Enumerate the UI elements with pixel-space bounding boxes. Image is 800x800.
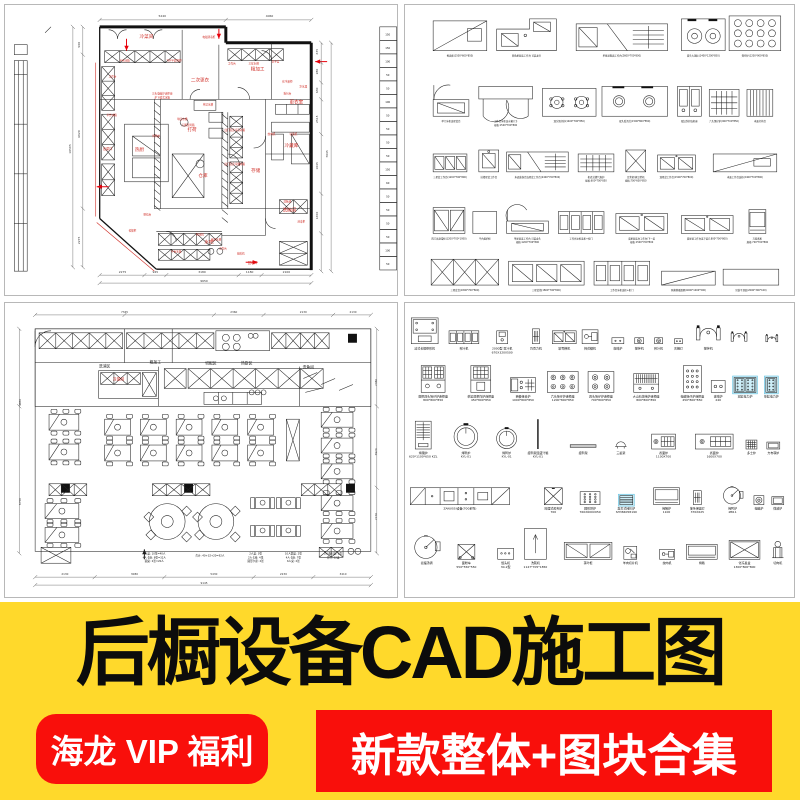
svg-text:规格:1500*700*800: 规格:1500*700*800	[630, 240, 654, 244]
svg-text:2230: 2230	[374, 513, 378, 520]
svg-text:6920: 6920	[77, 130, 81, 138]
svg-text:50: 50	[386, 194, 390, 198]
svg-text:净水器: 净水器	[299, 84, 307, 88]
svg-text:620*1100*650 KZL: 620*1100*650 KZL	[409, 455, 438, 459]
svg-text:合计: 40+32+20=92人: 合计: 40+32+20=92人	[195, 553, 224, 557]
svg-text:更衣室: 更衣室	[290, 98, 304, 105]
svg-text:100: 100	[385, 59, 390, 63]
svg-text:双头低汤灶(1500*800*850): 双头低汤灶(1500*800*850)	[619, 119, 650, 123]
svg-text:灭蝇灯: 灭蝇灯	[674, 346, 683, 351]
svg-text:化学品柜: 化学品柜	[282, 79, 293, 83]
svg-text:双星水槽: 双星水槽	[211, 237, 222, 241]
svg-text:3080: 3080	[131, 572, 138, 576]
svg-text:2人临时桌: 2张: 2人临时桌: 2张	[324, 551, 342, 555]
svg-text:多士炉: 多士炉	[747, 450, 756, 455]
svg-text:平台冰箱: 平台冰箱	[119, 59, 130, 63]
promo-banner: 后橱设备CAD施工图 海龙 VIP 福利 新款整体+图块合集	[0, 602, 800, 800]
svg-text:50: 50	[386, 127, 390, 131]
svg-text:挂鸭架: 挂鸭架	[579, 450, 588, 455]
svg-text:法式长棍整形机: 法式长棍整形机	[414, 346, 435, 351]
svg-text:150: 150	[385, 46, 390, 50]
svg-text:三星架: 三星架	[616, 450, 625, 455]
svg-text:切配区: 切配区	[205, 361, 217, 366]
svg-text:675: 675	[315, 49, 319, 55]
svg-text:450*800*850: 450*800*850	[682, 398, 702, 402]
panel-equipment-blocks-bottom: 法式长棍整形机榨汁机2000型 豆汁机670X320X500巧克力机软雪糕机棉花…	[404, 302, 795, 598]
svg-text:三星盆池(1800*700*800): 三星盆池(1800*700*800)	[532, 288, 561, 292]
svg-text:打荷: 打荷	[188, 126, 198, 133]
panel-restaurant-floorplan: 洗消区粗加工切配区热厨区洗鱼间冷菜间4人桌: 10张=40人4人卡座: 8张=3…	[4, 302, 398, 598]
svg-text:工作台: 工作台	[219, 246, 227, 250]
restaurant-floorplan-drawing: 洗消区粗加工切配区热厨区洗鱼间冷菜间4人桌: 10张=40人4人卡座: 8张=3…	[5, 303, 397, 597]
svg-text:单星盆连工作台 可装龙头: 单星盆连工作台 可装龙头	[514, 236, 542, 240]
svg-text:2275: 2275	[77, 236, 81, 244]
svg-text:50: 50	[386, 140, 390, 144]
svg-text:榨汁机: 榨汁机	[654, 346, 663, 351]
svg-text:10595: 10595	[68, 144, 72, 154]
svg-text:5240: 5240	[158, 14, 166, 18]
svg-text:4060: 4060	[266, 14, 274, 18]
svg-text:50: 50	[386, 235, 390, 239]
svg-text:50: 50	[386, 73, 390, 77]
svg-text:单星盆斜面工作台(2600*700*800): 单星盆斜面工作台(2600*700*800)	[603, 54, 641, 58]
banner-title: 后橱设备CAD施工图	[0, 614, 800, 692]
svg-text:KYL-01: KYL-01	[502, 455, 512, 459]
equipment-blocks-drawing-top: 煮面柜(1500*600*850)转角星盆连工作台 可装龙头单星盆斜面工作台(2…	[405, 5, 794, 295]
svg-text:2人桌: 3张: 2人桌: 3张	[249, 551, 262, 555]
svg-text:ZANUSSI设备(700系列): ZANUSSI设备(700系列)	[443, 506, 476, 511]
svg-text:2275: 2275	[119, 270, 127, 274]
svg-text:平台冰箱: 平台冰箱	[171, 249, 182, 253]
svg-text:50: 50	[386, 262, 390, 266]
svg-text:圆形卡座: 2张: 圆形卡座: 2张	[248, 559, 265, 563]
svg-text:KYL-01: KYL-01	[461, 455, 471, 459]
svg-text:消毒柜: 消毒柜	[297, 219, 305, 223]
svg-text:800*800*850: 800*800*850	[636, 398, 656, 402]
svg-text:豆浆机/煮豆浆机: 豆浆机/煮豆浆机	[627, 175, 645, 179]
svg-text:平台冰箱: 平台冰箱	[106, 113, 117, 117]
svg-text:洗手盆: 洗手盆	[272, 60, 280, 64]
svg-text:三星水槽: 三星水槽	[248, 62, 259, 66]
svg-text:150: 150	[385, 167, 390, 171]
svg-text:670X320X500: 670X320X500	[492, 350, 513, 354]
svg-text:绞肉机: 绞肉机	[663, 560, 672, 565]
svg-text:洗碗机: 洗碗机	[284, 200, 292, 204]
svg-text:700*800*850: 700*800*850	[591, 398, 611, 402]
svg-text:7345: 7345	[121, 310, 128, 314]
svg-text:回收口: 回收口	[248, 260, 257, 265]
svg-text:茶叶柜: 茶叶柜	[584, 560, 593, 565]
svg-text:4人卡座: 7张: 4人卡座: 7张	[286, 555, 302, 559]
svg-text:双头大锅灶(1400*1200*850): 双头大锅灶(1400*1200*850)	[687, 54, 720, 58]
svg-text:10人圆桌: 2张: 10人圆桌: 2张	[285, 551, 302, 555]
svg-text:软雪糕机: 软雪糕机	[558, 346, 570, 351]
svg-text:2230: 2230	[280, 572, 287, 576]
svg-text:760X600X950: 760X600X950	[580, 510, 601, 514]
svg-text:羊肉切片机: 羊肉切片机	[623, 560, 638, 565]
svg-text:粗加工: 粗加工	[150, 360, 162, 365]
svg-text:280: 280	[315, 69, 319, 75]
svg-text:9650: 9650	[200, 279, 208, 283]
svg-text:双星盆工作台(1500*700*800): 双星盆工作台(1500*700*800)	[660, 175, 694, 179]
svg-text:1180: 1180	[246, 270, 254, 274]
svg-text:木面装饰台连星盆工作台(2400*700*800): 木面装饰台连星盆工作台(2400*700*800)	[515, 175, 561, 179]
svg-text:巧克力机: 巧克力机	[530, 346, 542, 351]
svg-text:工作台: 工作台	[228, 62, 236, 66]
svg-text:三头电磁炉连柜座: 三头电磁炉连柜座	[152, 91, 173, 95]
svg-text:9145: 9145	[200, 581, 207, 585]
svg-text:100: 100	[385, 248, 390, 252]
svg-text:方布菲炉: 方布菲炉	[767, 450, 779, 455]
svg-text:圆桌: 2张=20人: 圆桌: 2张=20人	[145, 559, 165, 563]
svg-text:规格:700*700*800: 规格:700*700*800	[747, 240, 769, 244]
svg-text:三星盆工作台(1200*700*800): 三星盆工作台(1200*700*800)	[433, 175, 467, 179]
svg-text:六头煲仔炉(900*700*850): 六头煲仔炉(900*700*850)	[709, 119, 739, 123]
svg-text:候餐柜: 候餐柜	[129, 228, 137, 232]
svg-text:Ø811: Ø811	[729, 509, 737, 514]
svg-text:合计: 52桌: 合计: 52桌	[327, 555, 340, 559]
svg-text:拆包台: 拆包台	[284, 91, 292, 95]
svg-text:1045: 1045	[315, 162, 319, 170]
svg-text:切肉机: 切肉机	[773, 560, 782, 565]
svg-text:万能蒸柜: 万能蒸柜	[753, 236, 763, 240]
svg-text:煮面柜(1500*600*850): 煮面柜(1500*600*850)	[447, 54, 474, 58]
svg-text:1100: 1100	[663, 510, 671, 514]
svg-text:60: 60	[386, 181, 390, 185]
svg-text:粗加工: 粗加工	[251, 66, 265, 73]
svg-text:2100: 2100	[283, 270, 291, 274]
svg-text:微波炉: 微波炉	[773, 506, 782, 511]
svg-text:3410: 3410	[340, 572, 347, 576]
svg-text:1600X700: 1600X700	[707, 455, 722, 459]
svg-text:切菜机: 切菜机	[289, 132, 297, 136]
svg-text:冷藏库: 冷藏库	[285, 142, 299, 149]
svg-text:三星盆台(1800*700*800): 三星盆台(1800*700*800)	[451, 288, 480, 292]
svg-text:单层水槽: 单层水槽	[203, 102, 214, 106]
svg-text:TBF平面雪柜: TBF平面雪柜	[167, 59, 183, 63]
svg-text:50: 50	[386, 154, 390, 158]
svg-text:工作台冰柜连柜+柜门: 工作台冰柜连柜+柜门	[569, 236, 593, 240]
svg-text:转角星盆连工作台 可装龙头: 转角星盆连工作台 可装龙头	[512, 54, 542, 58]
svg-text:6750: 6750	[18, 498, 22, 505]
svg-text:热厨区: 热厨区	[241, 361, 253, 366]
svg-text:搅拌机: 搅拌机	[635, 346, 644, 351]
svg-text:明档台: 明档台	[144, 213, 152, 217]
svg-text:热厨: 热厨	[135, 146, 145, 153]
svg-text:搅拌机: 搅拌机	[704, 346, 713, 351]
svg-text:450*800*850: 450*800*850	[471, 398, 491, 402]
svg-text:平台焗炉柜: 平台焗炉柜	[479, 236, 491, 240]
promo-box: 新款整体+图块合集	[316, 710, 772, 792]
svg-text:冷菜间: 冷菜间	[113, 376, 125, 381]
svg-text:3180: 3180	[198, 270, 206, 274]
svg-text:4人桌: 10张=40人: 4人桌: 10张=40人	[143, 551, 166, 555]
svg-text:1147*705*1850: 1147*705*1850	[524, 565, 548, 569]
svg-text:50: 50	[386, 208, 390, 212]
svg-text:5430: 5430	[210, 572, 217, 576]
svg-text:3920: 3920	[374, 448, 378, 455]
svg-text:双缸电力炉: 双缸电力炉	[738, 393, 753, 398]
svg-text:工作台冰柜连柜+柜门: 工作台冰柜连柜+柜门	[610, 288, 634, 292]
svg-text:1300*800*800: 1300*800*800	[734, 565, 756, 569]
svg-text:2515: 2515	[315, 115, 319, 123]
svg-text:2130: 2130	[61, 572, 68, 576]
svg-text:四门高身冷藏冰箱: 四门高身冷藏冰箱	[224, 162, 245, 166]
svg-text:摇摆汤锅: 摇摆汤锅	[421, 560, 433, 565]
svg-text:烤鸭炉: 烤鸭炉	[152, 134, 160, 138]
svg-text:945: 945	[152, 270, 158, 274]
svg-text:二次更衣: 二次更衣	[191, 76, 210, 83]
svg-text:吊装平顶层(2000*300*100): 吊装平顶层(2000*300*100)	[735, 288, 766, 292]
svg-text:风幕侧吸烟罩(4000*1000*500): 风幕侧吸烟罩(4000*1000*500)	[671, 288, 706, 292]
svg-text:榨汁机: 榨汁机	[459, 346, 468, 351]
svg-text:双头煲仔炉(1400*700*850): 双头煲仔炉(1400*700*850)	[554, 119, 585, 123]
svg-text:1650: 1650	[315, 212, 319, 220]
svg-text:2130: 2130	[300, 310, 307, 314]
svg-text:木面打荷台: 木面打荷台	[754, 119, 766, 123]
svg-text:1200*800*850: 1200*800*850	[552, 398, 574, 402]
kitchen-floorplan-drawing: 1501501005050100505050501506050505050100…	[5, 5, 397, 295]
svg-text:700: 700	[550, 510, 556, 514]
svg-text:洗碗间: 洗碗间	[283, 207, 297, 214]
svg-text:棉花糖机: 棉花糖机	[584, 346, 596, 351]
svg-text:900: 900	[77, 42, 81, 48]
panel-equipment-blocks-top: 煮面柜(1500*600*850)转角星盆连工作台 可装龙头单星盆斜面工作台(2…	[404, 4, 795, 296]
svg-text:规格:700*600*850: 规格:700*600*850	[625, 178, 647, 182]
svg-text:单门冰柜连星盆台: 单门冰柜连星盆台	[442, 119, 462, 123]
svg-text:规格:600*700*850: 规格:600*700*850	[585, 178, 607, 182]
svg-text:4人卡座: 8张=32人: 4人卡座: 8张=32人	[143, 555, 167, 559]
svg-text:四门高身冷冻冰箱: 四门高身冷冻冰箱	[224, 128, 245, 132]
vip-badge: 海龙 VIP 福利	[36, 714, 268, 784]
equipment-blocks-drawing-bottom: 法式长棍整形机榨汁机2000型 豆汁机670X320X500巧克力机软雪糕机棉花…	[405, 303, 794, 597]
svg-text:630: 630	[315, 87, 319, 93]
svg-text:工作台冰柜连水箱(门): 工作台冰柜连水箱(门)	[494, 119, 517, 123]
svg-text:2360: 2360	[230, 310, 237, 314]
svg-text:KYL-01: KYL-01	[533, 455, 543, 459]
panel-kitchen-floorplan: 1501501005050100505050501506050505050100…	[4, 4, 398, 296]
svg-text:双星盆连台工作台/下一层: 双星盆连台工作台/下一层	[628, 236, 656, 240]
svg-text:万能蒸烤箱: 万能蒸烤箱	[182, 123, 195, 127]
svg-text:1000*800*850: 1000*800*850	[512, 398, 534, 402]
svg-text:4850: 4850	[18, 399, 22, 406]
svg-text:550*550*550: 550*550*550	[456, 565, 476, 569]
svg-text:800*800*850: 800*800*850	[423, 398, 443, 402]
svg-text:规格:1500*700*800: 规格:1500*700*800	[494, 123, 518, 127]
svg-text:咖啡炉: 咖啡炉	[613, 346, 622, 351]
svg-text:6人桌: 2张: 6人桌: 2张	[287, 559, 300, 563]
svg-text:四门高身雪柜(1200*700*1950): 四门高身雪柜(1200*700*1950)	[431, 236, 466, 240]
svg-text:单缸电力炉: 单缸电力炉	[764, 393, 779, 398]
svg-text:烤箱: 烤箱	[699, 560, 705, 565]
svg-text:绞肉机: 绞肉机	[268, 132, 276, 136]
svg-text:制冰机: 制冰机	[196, 232, 204, 236]
svg-text:双星盆工作台连下层(1800*700*800): 双星盆工作台连下层(1800*700*800)	[687, 236, 728, 240]
svg-text:30-2型: 30-2型	[501, 564, 511, 569]
svg-text:洗鱼间: 洗鱼间	[303, 365, 315, 370]
svg-text:7045: 7045	[325, 150, 329, 158]
svg-text:2130: 2130	[349, 310, 356, 314]
svg-text:1100X700: 1100X700	[656, 455, 671, 459]
svg-text:双缸炸炉连柜座: 双缸炸炉连柜座	[681, 119, 698, 123]
svg-text:冷菜间: 冷菜间	[140, 33, 154, 40]
svg-text:单层水槽: 单层水槽	[177, 117, 188, 121]
svg-text:规格:1200*700*800: 规格:1200*700*800	[516, 240, 540, 244]
svg-text:50: 50	[386, 86, 390, 90]
svg-text:工作台: 工作台	[109, 75, 117, 79]
svg-text:洗消区: 洗消区	[99, 364, 111, 369]
svg-text:出菜口: 出菜口	[103, 146, 112, 151]
svg-text:煲仔炉(1200*900*850): 煲仔炉(1200*900*850)	[742, 54, 769, 58]
svg-text:木面工作台连柜(2400*700*800): 木面工作台连柜(2400*700*800)	[727, 175, 763, 179]
svg-text:2人卡座: 4张: 2人卡座: 4张	[248, 555, 264, 559]
svg-text:50: 50	[386, 113, 390, 117]
cad-poster: 1501501005050100505050501506050505050100…	[0, 0, 800, 800]
svg-text:仓库: 仓库	[198, 172, 208, 179]
svg-text:存储: 存储	[251, 167, 261, 174]
svg-text:咖啡机: 咖啡机	[237, 251, 245, 255]
svg-text:50: 50	[386, 221, 390, 225]
svg-text:柜底式燃气焗炉: 柜底式燃气焗炉	[588, 175, 605, 179]
svg-text:240: 240	[715, 398, 721, 402]
svg-text:150: 150	[385, 32, 390, 36]
svg-text:炉下暖式冰箱: 炉下暖式冰箱	[155, 95, 171, 99]
svg-text:挂墙星盆工作台: 挂墙星盆工作台	[480, 175, 497, 179]
svg-text:2780: 2780	[374, 379, 378, 386]
svg-text:SH384058190: SH384058190	[616, 510, 637, 514]
svg-text:100: 100	[385, 100, 390, 104]
svg-text:电磁消毒柜: 电磁消毒柜	[202, 35, 215, 39]
svg-text:370X625: 370X625	[691, 510, 704, 514]
svg-text:电磁炉: 电磁炉	[754, 506, 763, 511]
